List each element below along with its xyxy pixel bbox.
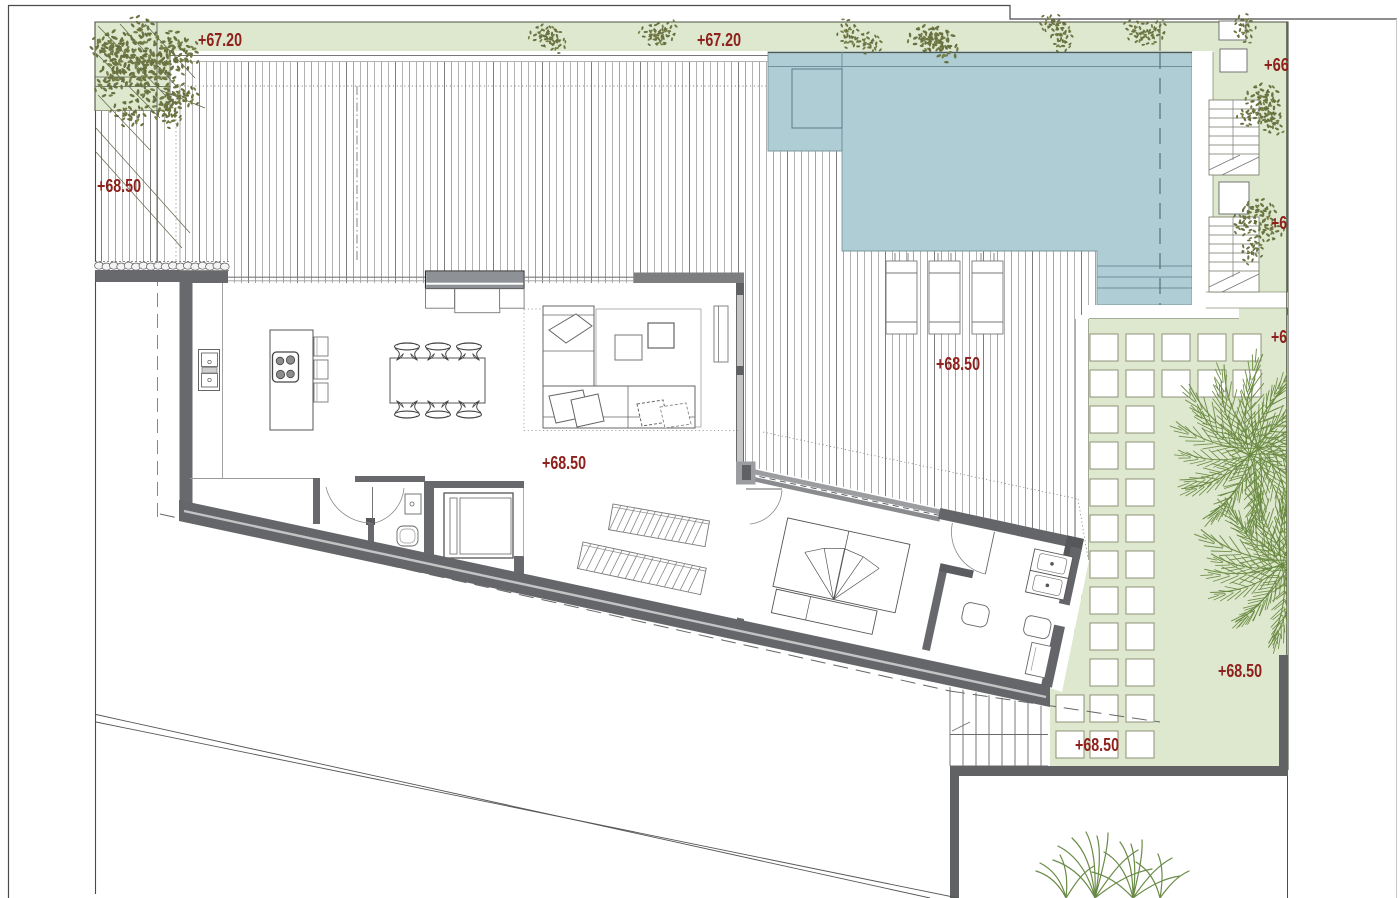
svg-text:+66: +66 [1264, 55, 1289, 75]
svg-text:+67.20: +67.20 [697, 30, 741, 50]
svg-text:+68.50: +68.50 [97, 176, 141, 196]
svg-text:+6: +6 [1271, 327, 1287, 347]
svg-text:+68.50: +68.50 [542, 453, 586, 473]
svg-text:+68.50: +68.50 [1075, 735, 1119, 755]
svg-text:+67.20: +67.20 [198, 30, 242, 50]
svg-text:+68.50: +68.50 [936, 354, 980, 374]
svg-text:+6: +6 [1271, 213, 1287, 233]
svg-text:+68.50: +68.50 [1218, 661, 1262, 681]
